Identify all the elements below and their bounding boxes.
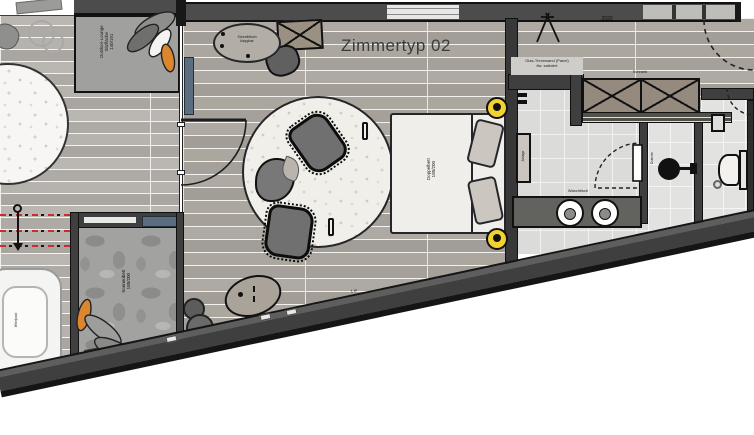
room-type-title: Zimmertyp 02 [341, 36, 451, 56]
stone-band [15, 0, 62, 14]
entrance-door-swing-arc [704, 20, 754, 70]
terrace-door-swing-arc [181, 120, 246, 185]
bathroom-door-leaf [633, 145, 642, 181]
tripod-symbol-icon [537, 13, 559, 42]
wc-door-swing-arc [727, 88, 754, 115]
glass-note-label: Glas-Trennwand (Panel) tlw. satiniert [512, 59, 582, 68]
dimension-label: 2020 [592, 17, 622, 23]
lounge-plant-icon [123, 7, 178, 73]
wardrobe-label: Schrank [622, 70, 658, 75]
floorplan-canvas: Whirlpool Outdoor-Lounge Sitzfläche 140/… [0, 0, 754, 435]
